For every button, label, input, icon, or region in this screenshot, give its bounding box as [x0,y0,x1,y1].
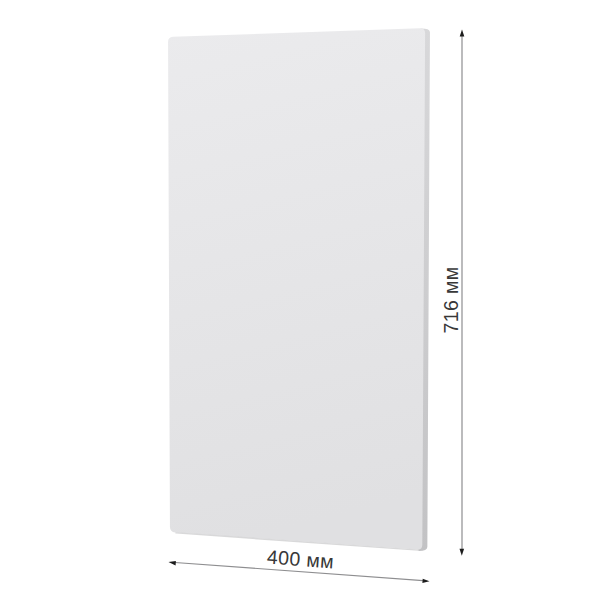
width-dimension-label: 400 мм [266,546,335,573]
height-arrow-up-icon [460,30,465,37]
panel-diagram-canvas: 716 мм 400 мм [0,0,600,600]
panel-face [168,28,425,549]
width-arrow-left-icon [169,561,176,565]
height-dimension-label: 716 мм [440,266,462,333]
product-dimension-diagram: 716 мм 400 мм [0,0,600,600]
width-arrow-right-icon [422,579,429,583]
height-arrow-down-icon [460,549,465,556]
height-dimension: 716 мм [440,30,464,556]
width-dimension: 400 мм [169,546,430,584]
